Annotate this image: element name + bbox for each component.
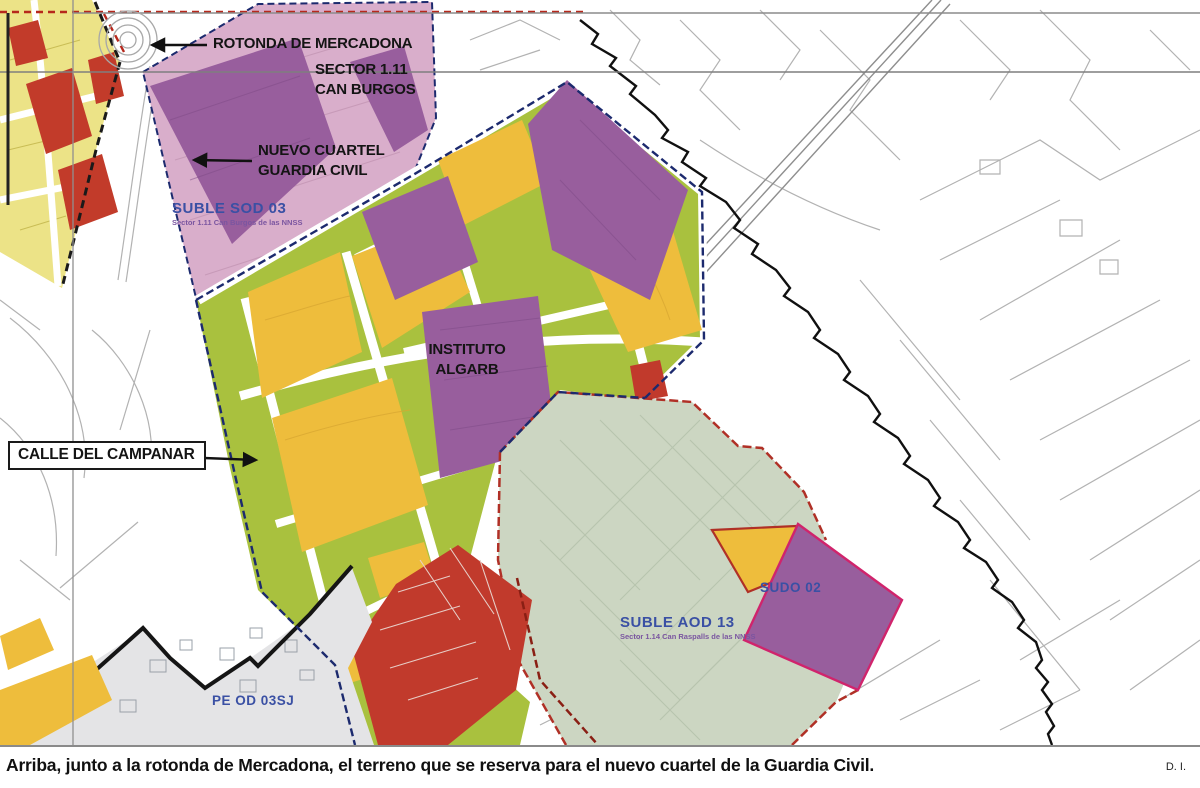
suble-aod-subtitle: Sector 1.14 Can Raspalls de las NNSS [620,633,755,641]
suble-sod-label: SUBLE SOD 03 Sector 1.11 Can Burgos de l… [172,201,302,227]
suble-aod-title: SUBLE AOD 13 [620,615,755,632]
rotonda-label: ROTONDA DE MERCADONA [213,34,412,54]
instituto-label-line2: ALGARB [408,360,526,380]
planning-map: ROTONDA DE MERCADONA SECTOR 1.11 CAN BUR… [0,0,1200,745]
cuartel-arrow [194,160,252,161]
instituto-label: INSTITUTO ALGARB [408,340,526,379]
caption-text: Arriba, junto a la rotonda de Mercadona,… [6,755,874,776]
pe-label: PE OD 03SJ [212,694,294,709]
suble-sod-title: SUBLE SOD 03 [172,201,302,218]
sector-label: SECTOR 1.11 CAN BURGOS [315,60,416,99]
sector-label-line2: CAN BURGOS [315,80,416,100]
suble-aod-label: SUBLE AOD 13 Sector 1.14 Can Raspalls de… [620,615,755,641]
campanar-box-label: CALLE DEL CAMPANAR [8,441,206,470]
map-canvas [0,0,1200,745]
sector-label-line1: SECTOR 1.11 [315,60,416,80]
news-map-graphic: ROTONDA DE MERCADONA SECTOR 1.11 CAN BUR… [0,0,1200,788]
caption-bar: Arriba, junto a la rotonda de Mercadona,… [0,745,1200,788]
cuartel-label: NUEVO CUARTEL GUARDIA CIVIL [258,141,385,180]
cuartel-label-line2: GUARDIA CIVIL [258,161,385,181]
sudo-label: SUDO 02 [760,581,821,596]
cuartel-label-line1: NUEVO CUARTEL [258,141,385,161]
instituto-label-line1: INSTITUTO [408,340,526,360]
caption-credit: D. I. [1166,761,1186,773]
suble-sod-subtitle: Sector 1.11 Can Burgos de las NNSS [172,219,302,227]
